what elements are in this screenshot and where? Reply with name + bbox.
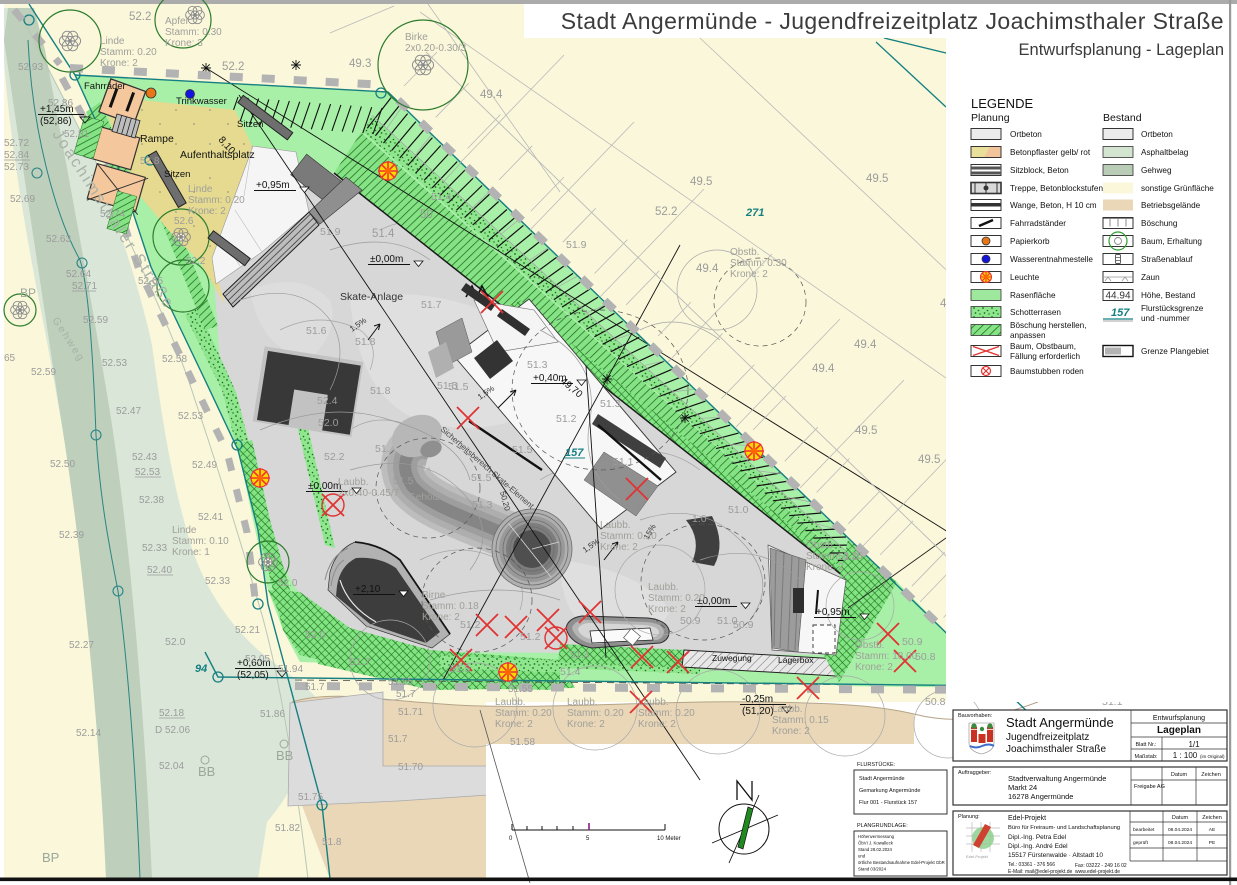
svg-text:Krone: 2: Krone: 2 xyxy=(772,726,810,737)
svg-text:52.59: 52.59 xyxy=(31,367,56,378)
svg-text:Papierkorb: Papierkorb xyxy=(1010,237,1050,246)
svg-text:Stamm: 0.10: Stamm: 0.10 xyxy=(172,536,229,547)
svg-text:Stamm: 0.30: Stamm: 0.30 xyxy=(730,258,787,269)
svg-text:Fahrräder: Fahrräder xyxy=(84,81,126,92)
svg-text:Linde: Linde xyxy=(100,36,125,47)
svg-text:+0,95m: +0,95m xyxy=(816,607,850,618)
svg-text:Obstb.: Obstb. xyxy=(855,640,884,651)
svg-text:Laubb.: Laubb. xyxy=(648,582,679,593)
svg-text:51.82: 51.82 xyxy=(275,823,300,834)
svg-text:Skate-Anlage: Skate-Anlage xyxy=(340,291,403,303)
svg-text:Krone: 2: Krone: 2 xyxy=(100,58,138,69)
svg-text:52.41: 52.41 xyxy=(198,512,223,523)
svg-text:Stadt Angermünde: Stadt Angermünde xyxy=(859,776,905,782)
svg-text:Flurstücksgrenze: Flurstücksgrenze xyxy=(1141,304,1204,313)
svg-text:52.0: 52.0 xyxy=(318,417,339,429)
svg-text:Laubb.: Laubb. xyxy=(495,697,526,708)
svg-text:Blatt Nr.:: Blatt Nr.: xyxy=(1135,742,1157,748)
svg-text:52.53: 52.53 xyxy=(135,467,160,478)
svg-text:Treppe, Betonblockstufen: Treppe, Betonblockstufen xyxy=(1010,184,1103,193)
svg-text:50.8: 50.8 xyxy=(925,696,946,708)
svg-text:Fällung erforderlich: Fällung erforderlich xyxy=(1010,352,1081,361)
svg-text:Baumstubben roden: Baumstubben roden xyxy=(1010,367,1084,376)
svg-text:Krone: 2: Krone: 2 xyxy=(638,719,676,730)
svg-text:Krone: 2: Krone: 2 xyxy=(495,719,533,730)
svg-text:08.04.2024: 08.04.2024 xyxy=(1168,840,1192,846)
svg-text:51.3: 51.3 xyxy=(472,499,493,511)
svg-text:51.2: 51.2 xyxy=(556,413,577,425)
svg-text:Stand 03/2024: Stand 03/2024 xyxy=(858,867,887,872)
svg-text:Krone: 2: Krone: 2 xyxy=(567,719,605,730)
svg-text:52.84: 52.84 xyxy=(4,150,29,161)
svg-text:49.3: 49.3 xyxy=(349,58,371,70)
svg-text:52.63: 52.63 xyxy=(46,234,71,245)
svg-text:Stamm: 18.00: Stamm: 18.00 xyxy=(855,651,918,662)
svg-text:52.93: 52.93 xyxy=(18,62,43,73)
svg-text:Laubb.: Laubb. xyxy=(600,520,631,531)
svg-text:-0,25m: -0,25m xyxy=(742,694,773,705)
svg-text:49.5: 49.5 xyxy=(866,173,888,185)
svg-text:Linde: Linde xyxy=(188,184,213,195)
svg-text:LEGENDE: LEGENDE xyxy=(971,96,1033,111)
svg-text:51.3: 51.3 xyxy=(600,398,621,410)
svg-text:Entwurfsplanung - Lageplan: Entwurfsplanung - Lageplan xyxy=(1019,41,1224,59)
svg-text:Krone: 2: Krone: 2 xyxy=(188,206,226,217)
svg-text:sonstige Grünfläche: sonstige Grünfläche xyxy=(1141,184,1214,193)
svg-text:ÖbVI J. Kowalleck: ÖbVI J. Kowalleck xyxy=(858,841,894,846)
svg-text:Stadtverwaltung Angermünde: Stadtverwaltung Angermünde xyxy=(1008,774,1106,783)
svg-text:52.53: 52.53 xyxy=(102,358,127,369)
svg-text:Krone: 2: Krone: 2 xyxy=(648,604,686,615)
svg-text:52.6: 52.6 xyxy=(174,216,194,227)
svg-text:BP: BP xyxy=(20,286,36,300)
svg-text:Entwurfsplanung: Entwurfsplanung xyxy=(1153,715,1205,722)
svg-text:52.33: 52.33 xyxy=(142,543,167,554)
svg-text:AE: AE xyxy=(1209,827,1215,833)
svg-text:Sitzen: Sitzen xyxy=(237,119,263,130)
svg-text:51.86: 51.86 xyxy=(260,709,285,720)
svg-text:Tel.: 03361 - 376 566: Tel.: 03361 - 376 566 xyxy=(1008,862,1055,868)
svg-text:Zuwegung: Zuwegung xyxy=(712,653,752,663)
svg-text:49.4: 49.4 xyxy=(480,89,503,101)
svg-text:(51,20): (51,20) xyxy=(742,706,774,717)
svg-text:Obstb.: Obstb. xyxy=(730,247,759,258)
svg-text:49.4: 49.4 xyxy=(854,339,877,351)
svg-text:51.71: 51.71 xyxy=(398,707,423,718)
svg-text:51.1: 51.1 xyxy=(613,456,634,468)
svg-text:Betriebsgelände: Betriebsgelände xyxy=(1141,201,1201,210)
svg-text:Wange, Beton, H 10 cm: Wange, Beton, H 10 cm xyxy=(1010,201,1097,210)
svg-text:52.47: 52.47 xyxy=(116,406,141,417)
svg-text:Krone: 2: Krone: 2 xyxy=(600,542,638,553)
svg-text:Stamm: 0.15: Stamm: 0.15 xyxy=(772,715,829,726)
svg-text:Zeichen: Zeichen xyxy=(1202,815,1222,821)
svg-text:+2,10: +2,10 xyxy=(355,584,381,595)
svg-text:Böschung: Böschung xyxy=(1141,219,1178,228)
svg-text:PLANGRUNDLAGE:: PLANGRUNDLAGE: xyxy=(857,823,908,829)
svg-text:Baum, Obstbaum,: Baum, Obstbaum, xyxy=(1010,342,1076,351)
svg-text:52.05: 52.05 xyxy=(245,654,270,665)
svg-text:D 52.06: D 52.06 xyxy=(155,725,190,736)
svg-text:Stadt Angermünde: Stadt Angermünde xyxy=(1006,715,1114,730)
svg-text:51.: 51. xyxy=(375,443,390,455)
svg-text:52.43: 52.43 xyxy=(132,452,157,463)
svg-text:51.5: 51.5 xyxy=(512,444,533,456)
svg-text:BB: BB xyxy=(276,748,293,763)
svg-text:Planung:: Planung: xyxy=(958,814,980,820)
svg-text:51.4: 51.4 xyxy=(560,666,581,678)
svg-text:52.53: 52.53 xyxy=(178,411,203,422)
svg-text:51.6: 51.6 xyxy=(306,325,327,337)
svg-text:52.2: 52.2 xyxy=(324,451,345,463)
svg-text:Lagerbox: Lagerbox xyxy=(778,655,814,665)
svg-text:geprüft: geprüft xyxy=(1133,840,1149,846)
svg-text:271: 271 xyxy=(745,207,764,219)
svg-text:49.5: 49.5 xyxy=(918,454,940,466)
svg-text:52.2: 52.2 xyxy=(129,11,151,23)
svg-text:Obstb.: Obstb. xyxy=(806,540,835,551)
svg-text:Dipl.-Ing. Petra Edel: Dipl.-Ing. Petra Edel xyxy=(1008,834,1067,841)
svg-text:Stand 28.02.2024: Stand 28.02.2024 xyxy=(858,847,893,852)
svg-text:Baum, Erhaltung: Baum, Erhaltung xyxy=(1141,237,1202,246)
svg-text:Datum: Datum xyxy=(1172,815,1189,821)
svg-text:52.21: 52.21 xyxy=(235,625,260,636)
svg-text:1 : 100: 1 : 100 xyxy=(1173,751,1198,760)
svg-text:51.7: 51.7 xyxy=(305,682,325,693)
svg-text:49.5: 49.5 xyxy=(690,176,712,188)
svg-text:Zeichen: Zeichen xyxy=(1201,772,1221,778)
svg-text:Krone: 2: Krone: 2 xyxy=(855,662,893,673)
svg-text:2x0.20-0.30/3: 2x0.20-0.30/3 xyxy=(405,43,467,54)
svg-text:und: und xyxy=(858,854,866,859)
svg-text:157: 157 xyxy=(1111,307,1130,319)
svg-text:Rampe: Rampe xyxy=(140,133,174,145)
svg-text:51.8: 51.8 xyxy=(322,837,342,848)
svg-text:50.9: 50.9 xyxy=(680,615,701,627)
svg-text:Edel-Projekt: Edel-Projekt xyxy=(1008,815,1046,822)
svg-text:Birne: Birne xyxy=(422,590,446,601)
svg-text:Höhe, Bestand: Höhe, Bestand xyxy=(1141,291,1196,300)
svg-text:51.4: 51.4 xyxy=(431,191,452,203)
svg-text:51.2: 51.2 xyxy=(520,631,541,643)
svg-text:52.0: 52.0 xyxy=(305,629,326,641)
svg-text:Fahrradständer: Fahrradständer xyxy=(1010,219,1066,228)
svg-text:Krone: 2: Krone: 2 xyxy=(806,562,844,573)
svg-text:Ortbeton: Ortbeton xyxy=(1141,130,1173,139)
svg-text:52.0: 52.0 xyxy=(165,636,186,648)
svg-text:FLURSTÜCKE:: FLURSTÜCKE: xyxy=(857,761,896,768)
svg-text:50.9: 50.9 xyxy=(902,636,923,648)
svg-text:BP: BP xyxy=(42,850,59,865)
svg-text:Bauvorhaben:: Bauvorhaben: xyxy=(958,713,993,719)
svg-text:±0,00m: ±0,00m xyxy=(308,481,341,492)
svg-text:Trinkwasser: Trinkwasser xyxy=(176,96,227,107)
svg-text:Stadt Angermünde - Jugendfreiz: Stadt Angermünde - Jugendfreizeitplatz J… xyxy=(561,8,1224,34)
svg-text:Stamm: 0.20: Stamm: 0.20 xyxy=(600,531,657,542)
svg-text:51.5: 51.5 xyxy=(450,663,471,675)
svg-text:Stamm: 0.18: Stamm: 0.18 xyxy=(422,601,479,612)
svg-text:Apfel: Apfel xyxy=(165,16,188,27)
svg-text:51.7: 51.7 xyxy=(388,734,408,745)
svg-text:44.94: 44.94 xyxy=(1105,291,1130,302)
svg-text:Stamm: 0.20: Stamm: 0.20 xyxy=(495,708,552,719)
svg-text:Markt 24: Markt 24 xyxy=(1008,783,1037,792)
svg-text:Leuchte: Leuchte xyxy=(1010,273,1040,282)
svg-text:Stamm: 0.20: Stamm: 0.20 xyxy=(188,195,245,206)
svg-text:±0,00m: ±0,00m xyxy=(370,254,403,265)
svg-text:51.7: 51.7 xyxy=(396,689,416,700)
svg-text:51.70: 51.70 xyxy=(398,762,423,773)
svg-text:51.4: 51.4 xyxy=(372,228,395,240)
svg-text:anpassen: anpassen xyxy=(1010,331,1046,340)
svg-text:08.04.2024: 08.04.2024 xyxy=(1168,827,1192,833)
svg-text:Stamm: 0.20: Stamm: 0.20 xyxy=(638,708,695,719)
svg-text:Birke: Birke xyxy=(405,32,428,43)
svg-text:51.3: 51.3 xyxy=(527,359,548,371)
svg-text:Zaun: Zaun xyxy=(1141,273,1160,282)
svg-text:Lageplan: Lageplan xyxy=(1157,725,1201,736)
svg-text:52.72: 52.72 xyxy=(4,138,29,149)
svg-text:Joachimsthaler Straße: Joachimsthaler Straße xyxy=(1006,744,1106,755)
svg-text:Schotterrasen: Schotterrasen xyxy=(1010,308,1061,317)
svg-text:51.5: 51.5 xyxy=(393,475,414,487)
svg-text:Laubb.: Laubb. xyxy=(338,477,369,488)
svg-text:Böschung herstellen,: Böschung herstellen, xyxy=(1010,321,1086,330)
svg-text:51.7: 51.7 xyxy=(421,299,442,311)
svg-text:52.8: 52.8 xyxy=(140,156,160,167)
svg-text:Höhenvermessung: Höhenvermessung xyxy=(858,834,895,839)
svg-text:Krone: 1: Krone: 1 xyxy=(172,547,210,558)
svg-text:51.5: 51.5 xyxy=(448,381,469,393)
svg-text:52.58: 52.58 xyxy=(162,354,187,365)
svg-text:Gehölz: Gehölz xyxy=(408,492,440,503)
svg-text:52.50: 52.50 xyxy=(50,459,75,470)
svg-text:52.18: 52.18 xyxy=(159,708,184,719)
svg-text:Laubb.: Laubb. xyxy=(638,697,669,708)
svg-text:52.2: 52.2 xyxy=(186,256,206,267)
svg-text:51.75: 51.75 xyxy=(298,792,323,803)
svg-text:51.8: 51.8 xyxy=(370,385,391,397)
svg-text:bearbeitet: bearbeitet xyxy=(1133,827,1155,833)
svg-text:52.04: 52.04 xyxy=(159,761,184,772)
svg-text:Asphaltbelag: Asphaltbelag xyxy=(1141,148,1189,157)
svg-text:BB: BB xyxy=(198,764,215,779)
svg-text:50: 50 xyxy=(420,209,433,221)
svg-text:49.4: 49.4 xyxy=(696,263,719,275)
svg-text:51.8: 51.8 xyxy=(355,336,376,348)
svg-text:51.4: 51.4 xyxy=(570,650,590,661)
svg-text:www.edel-projekt.de: www.edel-projekt.de xyxy=(1075,869,1120,875)
svg-text:Krone: 2: Krone: 2 xyxy=(730,269,768,280)
svg-text:Rasenfläche: Rasenfläche xyxy=(1010,291,1056,300)
svg-text:Stamm: 0.20: Stamm: 0.20 xyxy=(567,708,624,719)
svg-text:Büro für Freiraum- und Landsch: Büro für Freiraum- und Landschaftsplanun… xyxy=(1008,825,1120,831)
svg-text:Ortbeton: Ortbeton xyxy=(1010,130,1042,139)
svg-text:Stamm: 0.20: Stamm: 0.20 xyxy=(648,593,705,604)
svg-text:Laubb.: Laubb. xyxy=(772,704,803,715)
svg-text:52.39: 52.39 xyxy=(59,530,84,541)
svg-text:51.55: 51.55 xyxy=(508,684,533,695)
svg-text:157: 157 xyxy=(565,447,584,459)
svg-text:Linde: Linde xyxy=(172,525,197,536)
svg-text:Betonpflaster gelb/ rot: Betonpflaster gelb/ rot xyxy=(1010,148,1091,157)
svg-text:Stamm: 0.20: Stamm: 0.20 xyxy=(100,47,157,58)
svg-text:Edel-Projekt: Edel-Projekt xyxy=(966,854,989,859)
svg-text:1/1: 1/1 xyxy=(1188,740,1200,749)
svg-text:52.27: 52.27 xyxy=(69,640,94,651)
svg-text:Gemarkung Angermünde: Gemarkung Angermünde xyxy=(859,788,920,794)
svg-text:(im Original): (im Original) xyxy=(1200,754,1225,759)
svg-text:Wasserentnahmestelle: Wasserentnahmestelle xyxy=(1010,255,1093,264)
svg-text:51.2: 51.2 xyxy=(460,619,481,631)
svg-text:52.38: 52.38 xyxy=(139,495,164,506)
svg-text:1.0: 1.0 xyxy=(692,513,707,525)
svg-text:51.7: 51.7 xyxy=(350,656,371,668)
svg-text:51.94: 51.94 xyxy=(278,664,303,675)
svg-text:65: 65 xyxy=(4,353,16,364)
svg-text:52.2: 52.2 xyxy=(222,61,244,73)
svg-text:51.0: 51.0 xyxy=(728,504,749,516)
svg-text:Datum: Datum xyxy=(1171,772,1188,778)
svg-text:Stamm: 0.30: Stamm: 0.30 xyxy=(165,27,222,38)
svg-text:50.9: 50.9 xyxy=(733,619,754,631)
svg-text:50.8: 50.8 xyxy=(915,651,936,663)
svg-text:16278 Angermünde: 16278 Angermünde xyxy=(1008,792,1073,801)
svg-text:94: 94 xyxy=(195,663,207,675)
svg-text:Freigabe AG: Freigabe AG xyxy=(1134,784,1165,790)
svg-text:51.58: 51.58 xyxy=(510,737,535,748)
svg-text:Aufenthaltsplatz: Aufenthaltsplatz xyxy=(180,149,255,161)
svg-text:Sitzen: Sitzen xyxy=(164,169,190,180)
svg-text:Stamm: 0.25: Stamm: 0.25 xyxy=(806,551,863,562)
svg-text:Krone: 2: Krone: 2 xyxy=(422,612,460,623)
svg-text:Sitzblock, Beton: Sitzblock, Beton xyxy=(1010,166,1069,175)
svg-text:52.69: 52.69 xyxy=(10,194,35,205)
svg-text:Gehweg: Gehweg xyxy=(1141,166,1172,175)
svg-text:Bestand: Bestand xyxy=(1103,112,1142,124)
svg-text:52.73: 52.73 xyxy=(4,162,29,173)
svg-text:15517 Fürstenwalde · Altstadt: 15517 Fürstenwalde · Altstadt 10 xyxy=(1008,852,1103,859)
svg-text:51.9: 51.9 xyxy=(566,239,587,251)
svg-text:Grenze Plangebiet: Grenze Plangebiet xyxy=(1141,347,1210,356)
svg-text:und -nummer: und -nummer xyxy=(1141,314,1190,323)
svg-text:Dipl.-Ing. André Edel: Dipl.-Ing. André Edel xyxy=(1008,843,1068,850)
svg-text:52.2: 52.2 xyxy=(655,206,677,218)
svg-text:10 Meter: 10 Meter xyxy=(657,836,681,842)
svg-text:52.0: 52.0 xyxy=(278,578,298,589)
svg-text:49.4: 49.4 xyxy=(812,363,835,375)
svg-text:Laubb.: Laubb. xyxy=(567,697,598,708)
svg-text:52.49: 52.49 xyxy=(192,460,217,471)
svg-text:52.86: 52.86 xyxy=(48,98,73,109)
svg-text:52.59: 52.59 xyxy=(83,315,108,326)
svg-text:52.64: 52.64 xyxy=(66,269,91,280)
svg-text:52.65: 52.65 xyxy=(138,276,163,287)
svg-text:Jugendfreizeitplatz: Jugendfreizeitplatz xyxy=(1006,732,1089,743)
svg-text:52.81: 52.81 xyxy=(64,129,89,140)
svg-text:+0,95m: +0,95m xyxy=(256,180,290,191)
svg-text:Planung: Planung xyxy=(971,112,1010,124)
svg-text:51.55: 51.55 xyxy=(388,677,413,688)
svg-text:(52,86): (52,86) xyxy=(40,116,72,127)
svg-text:49.5: 49.5 xyxy=(855,425,877,437)
svg-text:52.33: 52.33 xyxy=(205,576,230,587)
svg-text:52.74: 52.74 xyxy=(100,209,125,220)
svg-text:Krone: 3: Krone: 3 xyxy=(165,38,203,49)
svg-text:52.40: 52.40 xyxy=(147,565,172,576)
svg-text:Maßstab:: Maßstab: xyxy=(1135,754,1158,760)
svg-text:Auftraggeber:: Auftraggeber: xyxy=(958,770,992,776)
svg-text:52.14: 52.14 xyxy=(76,728,101,739)
svg-text:52.4: 52.4 xyxy=(317,395,338,407)
svg-text:(52,05): (52,05) xyxy=(237,670,269,681)
svg-text:örtliche Bestandsaufnahme Edel: örtliche Bestandsaufnahme Edel-Projekt G… xyxy=(858,860,945,865)
svg-text:PE: PE xyxy=(1209,840,1215,846)
svg-text:2x0.40-0.45/7: 2x0.40-0.45/7 xyxy=(338,488,400,499)
svg-text:51.9: 51.9 xyxy=(320,226,341,238)
svg-text:52.71: 52.71 xyxy=(72,281,97,292)
svg-text:51.5: 51.5 xyxy=(471,472,492,484)
svg-text:Flur 001 - Flurstück 157: Flur 001 - Flurstück 157 xyxy=(859,800,917,806)
svg-text:Straßenablauf: Straßenablauf xyxy=(1141,255,1193,264)
svg-text:E-Mail: mail@edel-projekt.de: E-Mail: mail@edel-projekt.de xyxy=(1008,869,1072,875)
